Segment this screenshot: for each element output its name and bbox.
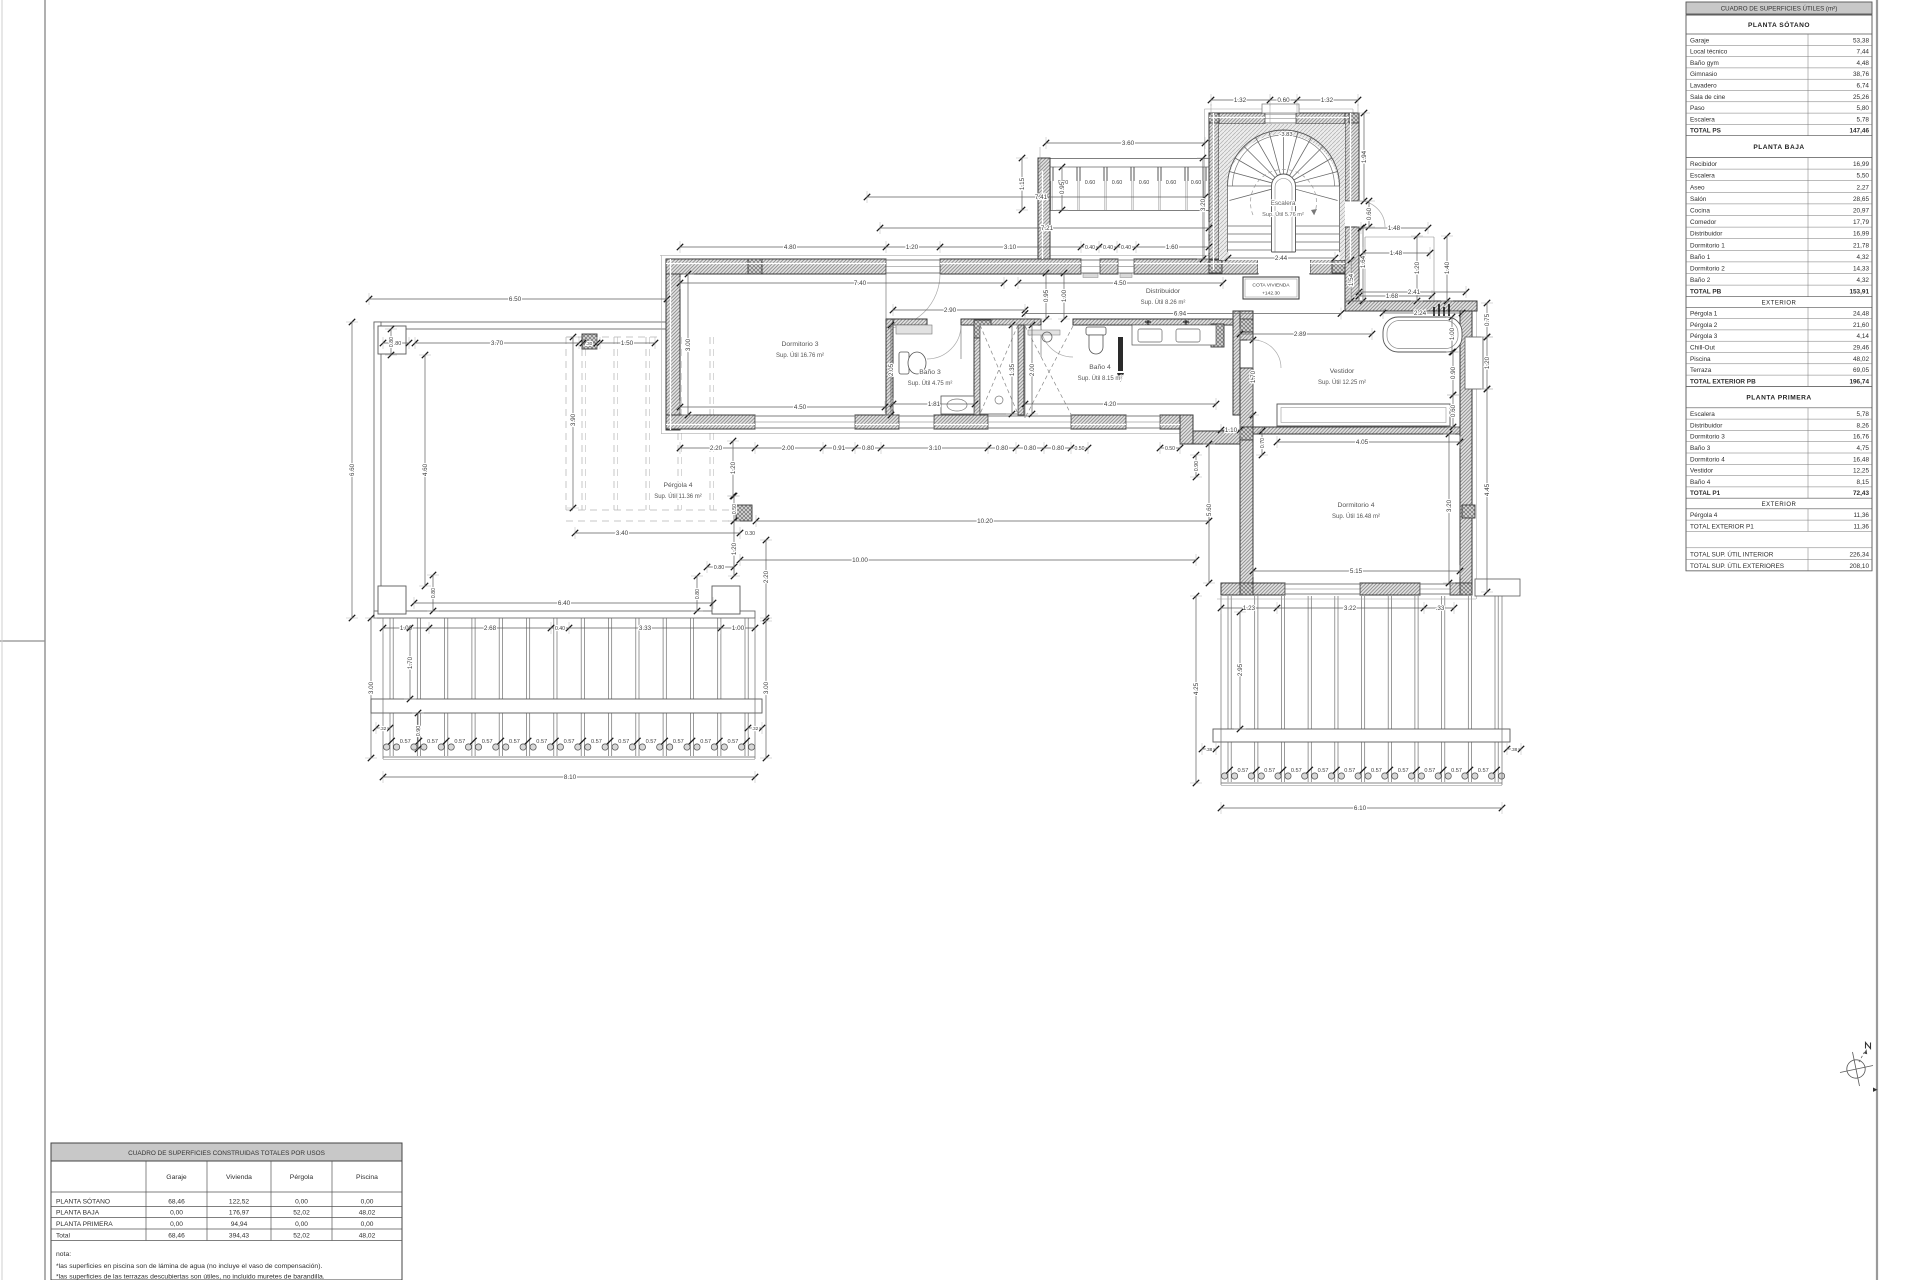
svg-text:Escalera: Escalera: [1690, 173, 1715, 180]
svg-text:2.24: 2.24: [1414, 310, 1427, 317]
svg-text:0.57: 0.57: [1264, 768, 1275, 774]
svg-text:-3.83: -3.83: [1279, 132, 1292, 138]
svg-text:226,34: 226,34: [1849, 551, 1869, 558]
svg-text:7,44: 7,44: [1857, 49, 1870, 56]
svg-text:38,76: 38,76: [1853, 71, 1869, 78]
svg-text:5,78: 5,78: [1857, 116, 1870, 123]
svg-text:1.70: 1.70: [1250, 370, 1257, 383]
svg-text:14,33: 14,33: [1853, 266, 1869, 273]
svg-text:0.57: 0.57: [427, 739, 438, 745]
svg-text:Chill-Out: Chill-Out: [1690, 345, 1715, 352]
svg-text:0.57: 0.57: [1478, 768, 1489, 774]
svg-text:16,48: 16,48: [1853, 456, 1869, 463]
svg-text:0.95: 0.95: [1043, 289, 1050, 302]
svg-text:48,02: 48,02: [1853, 356, 1869, 363]
svg-text:CUADRO DE SUPERFICIES CONSTRUI: CUADRO DE SUPERFICIES CONSTRUIDAS TOTALE…: [128, 1150, 325, 1157]
svg-text:16,76: 16,76: [1853, 434, 1869, 441]
svg-text:1.40: 1.40: [1444, 261, 1451, 274]
svg-text:CUADRO DE SUPERFICIES ÚTILES (: CUADRO DE SUPERFICIES ÚTILES (m²): [1721, 6, 1838, 13]
svg-text:Total: Total: [56, 1232, 70, 1239]
svg-text:0.40: 0.40: [1121, 245, 1131, 251]
svg-text:0.70: 0.70: [1260, 438, 1266, 448]
svg-text:0.57: 0.57: [1344, 768, 1355, 774]
svg-text:0.95: 0.95: [1059, 181, 1066, 194]
svg-text:1.68: 1.68: [1386, 293, 1399, 300]
svg-text:EXTERIOR: EXTERIOR: [1762, 502, 1797, 508]
svg-text:153,91: 153,91: [1849, 289, 1869, 296]
svg-text:1.20: 1.20: [731, 542, 738, 555]
svg-text:Comedor: Comedor: [1690, 219, 1717, 226]
svg-text:*las superficies de las terraz: *las superficies de las terrazas descubi…: [56, 1274, 325, 1281]
svg-text:21,78: 21,78: [1853, 242, 1869, 249]
svg-text:Distribuidor: Distribuidor: [1690, 422, 1723, 429]
svg-text:6,74: 6,74: [1857, 83, 1870, 90]
svg-text:3.00: 3.00: [685, 338, 692, 351]
svg-text:Vestidor: Vestidor: [1330, 368, 1355, 375]
svg-text:.38: .38: [1206, 747, 1213, 753]
svg-text:0,00: 0,00: [361, 1221, 374, 1228]
svg-text:10.00: 10.00: [852, 557, 868, 564]
svg-text:20,97: 20,97: [1853, 208, 1869, 215]
svg-text:122,52: 122,52: [229, 1198, 250, 1205]
svg-text:3.00: 3.00: [763, 681, 770, 694]
svg-text:Piscina: Piscina: [1690, 356, 1711, 363]
svg-text:1.00: 1.00: [400, 625, 413, 632]
svg-text:Garaje: Garaje: [166, 1174, 187, 1181]
svg-text:0.30: 0.30: [745, 531, 755, 537]
svg-text:8,26: 8,26: [1857, 422, 1870, 429]
svg-text:0.50: 0.50: [1165, 446, 1175, 452]
svg-text:1.15: 1.15: [1019, 177, 1026, 190]
svg-text:4,75: 4,75: [1857, 445, 1870, 452]
svg-text:0.57: 0.57: [509, 739, 520, 745]
svg-text:3.90: 3.90: [570, 413, 577, 426]
svg-text:6.60: 6.60: [349, 463, 356, 476]
svg-text:0.40: 0.40: [1085, 245, 1095, 251]
svg-text:1.00: 1.00: [1449, 327, 1456, 340]
svg-text:0.60: 0.60: [1085, 180, 1096, 186]
svg-text:Local técnico: Local técnico: [1690, 49, 1728, 56]
svg-text:0.40: 0.40: [555, 626, 565, 632]
svg-text:Salón: Salón: [1690, 196, 1707, 203]
svg-text:1.48: 1.48: [1388, 225, 1401, 232]
svg-text:1.20: 1.20: [906, 244, 919, 251]
svg-text:4,32: 4,32: [1857, 254, 1870, 261]
svg-text:1.20: 1.20: [1484, 356, 1491, 369]
svg-text:4.20: 4.20: [1104, 401, 1117, 408]
svg-text:Distribuidor: Distribuidor: [1690, 231, 1723, 238]
svg-text:0.57: 0.57: [1451, 768, 1462, 774]
svg-text:Paso: Paso: [1690, 105, 1705, 112]
svg-text:Baño 4: Baño 4: [1089, 364, 1111, 371]
svg-text:Dormitorio 4: Dormitorio 4: [1690, 456, 1725, 463]
svg-text:0.80: 0.80: [996, 445, 1009, 452]
svg-text:8,15: 8,15: [1857, 479, 1870, 486]
svg-text:Sup. Útil 5.76 m²: Sup. Útil 5.76 m²: [1262, 211, 1304, 218]
svg-text:0.80: 0.80: [389, 337, 395, 347]
svg-text:69,05: 69,05: [1853, 367, 1869, 374]
svg-text:1.48: 1.48: [1390, 250, 1403, 257]
svg-text:4.50: 4.50: [794, 404, 807, 411]
svg-text:0,00: 0,00: [361, 1198, 374, 1205]
svg-text:0.60: 0.60: [1139, 180, 1150, 186]
svg-text:0.57: 0.57: [700, 739, 711, 745]
svg-text:0.80: 0.80: [862, 445, 875, 452]
svg-text:Garaje: Garaje: [1690, 37, 1710, 44]
svg-text:3.20: 3.20: [1446, 499, 1453, 512]
svg-text:0.60: 0.60: [1277, 97, 1290, 104]
svg-text:Gimnasio: Gimnasio: [1690, 71, 1717, 78]
svg-text:TOTAL EXTERIOR PB: TOTAL EXTERIOR PB: [1690, 378, 1756, 385]
svg-text:94,94: 94,94: [231, 1221, 248, 1228]
svg-text:3.33: 3.33: [639, 625, 652, 632]
svg-text:52,02: 52,02: [293, 1232, 310, 1239]
svg-text:TOTAL P1: TOTAL P1: [1690, 490, 1721, 497]
svg-text:.33: .33: [1436, 605, 1445, 612]
svg-text:EXTERIOR: EXTERIOR: [1762, 300, 1797, 306]
svg-text:Dormitorio 3: Dormitorio 3: [781, 341, 818, 348]
svg-text:0,00: 0,00: [170, 1209, 183, 1216]
svg-text:1.32: 1.32: [1321, 97, 1334, 104]
svg-text:0.91: 0.91: [833, 445, 846, 452]
svg-text:1.00: 1.00: [1061, 289, 1068, 302]
svg-text:Baño 2: Baño 2: [1690, 277, 1711, 284]
svg-text:PLANTA PRIMERA: PLANTA PRIMERA: [1746, 395, 1811, 402]
svg-text:Sup. Útil 12.25 m²: Sup. Útil 12.25 m²: [1318, 379, 1366, 386]
svg-text:6.50: 6.50: [509, 296, 522, 303]
svg-text:53,38: 53,38: [1853, 37, 1869, 44]
svg-text:Dormitorio 3: Dormitorio 3: [1690, 434, 1725, 441]
svg-text:0.50: 0.50: [732, 504, 738, 514]
svg-text:0.60: 0.60: [1166, 180, 1177, 186]
svg-text:25,26: 25,26: [1853, 94, 1869, 101]
svg-text:48,02: 48,02: [359, 1209, 376, 1216]
svg-text:PLANTA BAJA: PLANTA BAJA: [1753, 144, 1804, 151]
svg-text:208,10: 208,10: [1849, 563, 1869, 570]
svg-text:2.95: 2.95: [1237, 663, 1244, 676]
svg-text:4.80: 4.80: [784, 244, 797, 251]
svg-text:TOTAL SUP. ÚTIL EXTERIORES: TOTAL SUP. ÚTIL EXTERIORES: [1690, 561, 1784, 570]
svg-text:TOTAL SUP. ÚTIL INTERIOR: TOTAL SUP. ÚTIL INTERIOR: [1690, 549, 1774, 558]
svg-text:2,27: 2,27: [1857, 184, 1870, 191]
svg-text:2.05: 2.05: [888, 363, 895, 376]
svg-text:24,48: 24,48: [1853, 311, 1869, 318]
svg-text:1.70: 1.70: [407, 656, 414, 669]
svg-text:3.60: 3.60: [1122, 140, 1135, 147]
svg-text:Distribuidor: Distribuidor: [1146, 288, 1181, 295]
svg-text:Escalera: Escalera: [1690, 411, 1715, 418]
svg-text:16,99: 16,99: [1853, 161, 1869, 168]
svg-text:0.40: 0.40: [1103, 245, 1113, 251]
svg-text:176,97: 176,97: [229, 1209, 250, 1216]
svg-text:PLANTA BAJA: PLANTA BAJA: [56, 1209, 100, 1216]
svg-text:Lavadero: Lavadero: [1690, 83, 1717, 90]
svg-text:2.44: 2.44: [1275, 255, 1288, 262]
svg-text:52,02: 52,02: [293, 1209, 310, 1216]
svg-text:0.80: 0.80: [695, 589, 701, 599]
svg-text:0.57: 0.57: [618, 739, 629, 745]
svg-text:4.45: 4.45: [1484, 483, 1491, 496]
svg-text:7.40: 7.40: [854, 280, 867, 287]
svg-text:0.57: 0.57: [482, 739, 493, 745]
svg-text:0.80: 0.80: [1052, 445, 1065, 452]
svg-text:0.80: 0.80: [431, 588, 437, 598]
svg-text:7.21: 7.21: [1041, 225, 1054, 232]
svg-text:Piscina: Piscina: [356, 1174, 378, 1181]
svg-text:.32: .32: [752, 726, 759, 732]
svg-text:1.50: 1.50: [621, 340, 634, 347]
svg-text:0.90: 0.90: [416, 726, 422, 737]
svg-text:394,43: 394,43: [229, 1232, 250, 1239]
svg-text:10.20: 10.20: [977, 518, 993, 525]
svg-text:7.41: 7.41: [1035, 194, 1048, 201]
svg-text:6.10: 6.10: [1354, 805, 1367, 812]
svg-text:Sup. Útil 8.15 m²: Sup. Útil 8.15 m²: [1078, 375, 1123, 382]
svg-text:1.00: 1.00: [732, 625, 745, 632]
svg-text:68,46: 68,46: [168, 1232, 185, 1239]
svg-text:6.40: 6.40: [558, 600, 571, 607]
svg-text:196,74: 196,74: [1849, 378, 1869, 385]
svg-text:21,60: 21,60: [1853, 322, 1869, 329]
svg-text:3.10: 3.10: [1004, 244, 1017, 251]
svg-text:+142.30: +142.30: [1262, 291, 1280, 297]
svg-text:Sala de cine: Sala de cine: [1690, 94, 1726, 101]
svg-text:17,79: 17,79: [1853, 219, 1869, 226]
svg-text:0.57: 0.57: [564, 739, 575, 745]
svg-text:16,99: 16,99: [1853, 231, 1869, 238]
svg-text:3.00: 3.00: [368, 681, 375, 694]
svg-text:48,02: 48,02: [359, 1232, 376, 1239]
svg-text:1.64: 1.64: [1360, 255, 1367, 268]
svg-text:2.20: 2.20: [710, 445, 723, 452]
svg-text:1.32: 1.32: [1234, 97, 1247, 104]
svg-text:1.81: 1.81: [928, 401, 941, 408]
svg-text:2.00: 2.00: [782, 445, 795, 452]
svg-text:Sup. Útil 16.48 m²: Sup. Útil 16.48 m²: [1332, 513, 1380, 520]
svg-text:Pérgola 3: Pérgola 3: [1690, 333, 1718, 340]
svg-text:TOTAL PB: TOTAL PB: [1690, 289, 1722, 296]
svg-text:3.70: 3.70: [491, 340, 504, 347]
svg-text:4,48: 4,48: [1857, 60, 1870, 67]
svg-text:nota:: nota:: [56, 1251, 71, 1258]
svg-text:1.20: 1.20: [730, 461, 737, 474]
svg-text:0.57: 0.57: [591, 739, 602, 745]
svg-text:TOTAL PS: TOTAL PS: [1690, 128, 1722, 135]
svg-text:0.57: 0.57: [400, 739, 411, 745]
svg-text:2.68: 2.68: [484, 625, 497, 632]
svg-text:Sup. Útil 8.26 m²: Sup. Útil 8.26 m²: [1141, 299, 1186, 306]
svg-text:2.89: 2.89: [1294, 331, 1307, 338]
svg-text:5,80: 5,80: [1857, 105, 1870, 112]
svg-text:1.54: 1.54: [1348, 273, 1355, 286]
svg-text:4.25: 4.25: [1193, 682, 1200, 695]
svg-text:TOTAL EXTERIOR P1: TOTAL EXTERIOR P1: [1690, 523, 1754, 530]
svg-text:Aseo: Aseo: [1690, 184, 1705, 191]
svg-text:.38: .38: [1511, 747, 1518, 753]
svg-text:3.40: 3.40: [616, 530, 629, 537]
svg-text:4,32: 4,32: [1857, 277, 1870, 284]
svg-text:3.22: 3.22: [1344, 605, 1357, 612]
svg-text:0.57: 0.57: [1318, 768, 1329, 774]
svg-text:0.57: 0.57: [1424, 768, 1435, 774]
svg-text:1.35: 1.35: [1009, 363, 1016, 376]
svg-text:Escalera: Escalera: [1271, 200, 1296, 207]
svg-text:5,50: 5,50: [1857, 173, 1870, 180]
svg-text:Baño 4: Baño 4: [1690, 479, 1711, 486]
svg-text:0.90: 0.90: [1450, 366, 1457, 379]
svg-text:0.75: 0.75: [1484, 313, 1491, 326]
svg-text:Dormitorio 2: Dormitorio 2: [1690, 266, 1725, 273]
svg-text:Pérgola 1: Pérgola 1: [1690, 311, 1718, 318]
svg-text:0,00: 0,00: [295, 1198, 308, 1205]
svg-text:3.20: 3.20: [1200, 198, 1207, 211]
svg-text:Dormitorio 4: Dormitorio 4: [1337, 502, 1374, 509]
svg-text:PLANTA SÓTANO: PLANTA SÓTANO: [56, 1196, 110, 1205]
svg-text:6.94: 6.94: [1174, 311, 1187, 318]
svg-text:0.57: 0.57: [1371, 768, 1382, 774]
svg-text:0.50: 0.50: [1074, 446, 1084, 452]
svg-text:2.41: 2.41: [1408, 289, 1421, 296]
svg-text:COTA VIVIENDA: COTA VIVIENDA: [1252, 283, 1290, 289]
svg-text:68,46: 68,46: [168, 1198, 185, 1205]
svg-text:Baño 1: Baño 1: [1690, 254, 1711, 261]
svg-text:0.60: 0.60: [1366, 207, 1373, 220]
svg-text:Vivienda: Vivienda: [226, 1174, 252, 1181]
svg-text:4.50: 4.50: [1114, 280, 1127, 287]
svg-text:11,36: 11,36: [1853, 512, 1869, 519]
svg-text:0.57: 0.57: [1398, 768, 1409, 774]
svg-text:.30: .30: [586, 341, 593, 347]
svg-text:Pérgola: Pérgola: [290, 1174, 314, 1181]
svg-text:*las superficies en piscina so: *las superficies en piscina son de lámin…: [56, 1263, 322, 1270]
svg-text:0.57: 0.57: [1291, 768, 1302, 774]
svg-text:29,46: 29,46: [1853, 345, 1869, 352]
svg-text:0.90: 0.90: [1194, 461, 1200, 471]
svg-text:Escalera: Escalera: [1690, 116, 1715, 123]
svg-text:4.05: 4.05: [1356, 439, 1369, 446]
svg-text:Cocina: Cocina: [1690, 208, 1710, 215]
svg-text:Recibidor: Recibidor: [1690, 161, 1718, 168]
svg-text:0.57: 0.57: [1238, 768, 1249, 774]
svg-text:Pérgola 4: Pérgola 4: [1690, 512, 1718, 519]
svg-text:5.15: 5.15: [1350, 568, 1363, 575]
svg-text:0.60: 0.60: [1191, 180, 1202, 186]
svg-text:147,46: 147,46: [1849, 128, 1869, 135]
svg-text:Dormitorio 1: Dormitorio 1: [1690, 242, 1725, 249]
svg-text:3.10: 3.10: [929, 445, 942, 452]
svg-text:4,14: 4,14: [1857, 333, 1870, 340]
svg-text:0,00: 0,00: [295, 1221, 308, 1228]
svg-text:Terraza: Terraza: [1690, 367, 1712, 374]
svg-text:0.80: 0.80: [714, 565, 725, 571]
svg-text:2.20: 2.20: [763, 570, 770, 583]
svg-text:0.57: 0.57: [646, 739, 657, 745]
svg-text:0.57: 0.57: [673, 739, 684, 745]
svg-text:Baño 3: Baño 3: [919, 369, 941, 376]
svg-text:4.60: 4.60: [422, 463, 429, 476]
svg-text:28,65: 28,65: [1853, 196, 1869, 203]
svg-text:0.60: 0.60: [1112, 180, 1123, 186]
svg-text:0.57: 0.57: [728, 739, 739, 745]
svg-text:PLANTA SÓTANO: PLANTA SÓTANO: [1748, 20, 1810, 29]
svg-text:11,36: 11,36: [1853, 523, 1869, 530]
svg-text:Baño 3: Baño 3: [1690, 445, 1711, 452]
svg-text:5.60: 5.60: [1206, 503, 1213, 516]
svg-text:5,78: 5,78: [1857, 411, 1870, 418]
svg-text:0.60: 0.60: [1450, 404, 1457, 417]
svg-text:Sup. Útil 11.36 m²: Sup. Útil 11.36 m²: [654, 493, 702, 500]
svg-text:.32: .32: [380, 726, 387, 732]
svg-text:1.60: 1.60: [1166, 244, 1179, 251]
svg-text:0.57: 0.57: [454, 739, 465, 745]
svg-text:1.10: 1.10: [1225, 427, 1238, 434]
svg-text:Pérgola 4: Pérgola 4: [663, 482, 692, 489]
svg-text:PLANTA PRIMERA: PLANTA PRIMERA: [56, 1221, 113, 1228]
svg-text:0.80: 0.80: [1024, 445, 1037, 452]
svg-text:72,43: 72,43: [1853, 490, 1869, 497]
svg-text:1.94: 1.94: [1361, 150, 1368, 163]
svg-text:0.57: 0.57: [536, 739, 547, 745]
svg-text:8.10: 8.10: [564, 774, 577, 781]
svg-text:1.20: 1.20: [1414, 261, 1421, 274]
svg-text:Sup. Útil 16.76 m²: Sup. Útil 16.76 m²: [776, 352, 824, 359]
svg-text:0,00: 0,00: [170, 1221, 183, 1228]
svg-text:Pérgola 2: Pérgola 2: [1690, 322, 1718, 329]
svg-text:Baño gym: Baño gym: [1690, 60, 1719, 67]
svg-text:1.23: 1.23: [1243, 605, 1256, 612]
svg-text:Vestidor: Vestidor: [1690, 468, 1714, 475]
svg-text:2.90: 2.90: [944, 307, 957, 314]
svg-text:2.00: 2.00: [1029, 363, 1036, 376]
svg-text:12,25: 12,25: [1853, 468, 1869, 475]
svg-text:Sup. Útil 4.75 m²: Sup. Útil 4.75 m²: [908, 380, 953, 387]
